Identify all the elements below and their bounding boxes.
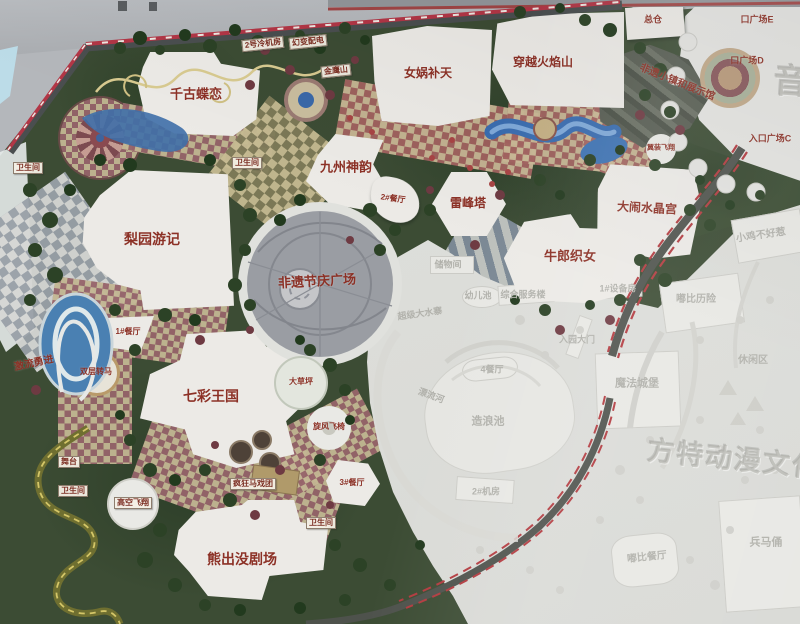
faded-label: 造浪池 [472, 417, 505, 428]
restaurant-label: 1#餐厅 [116, 328, 141, 336]
faded-label: 嘟比历险 [676, 295, 716, 305]
faded-label: 魔法城堡 [615, 379, 659, 390]
faded-label: 入园大门 [559, 336, 595, 345]
attraction-label: 穿越火焰山 [513, 56, 573, 68]
ride-label: 旋风飞椅 [313, 423, 345, 431]
restroom-label: 卫生间 [306, 517, 336, 529]
restaurant-label: 3#餐厅 [340, 479, 365, 487]
attraction-label: 总仓 [644, 16, 662, 25]
faded-label: 综合服务楼 [500, 291, 545, 300]
restroom-label: 卫生间 [58, 485, 88, 497]
attraction-label: 七彩王国 [183, 389, 239, 403]
entrance-label: 口广场D [730, 57, 764, 66]
watermark-music: 音乐 [772, 53, 800, 107]
attraction-label: 九州神韵 [320, 161, 372, 174]
entrance-label: 入口广场C [749, 135, 792, 144]
ride-label: 双层转马 [80, 368, 112, 376]
faded-label: 2#机房 [472, 488, 500, 497]
attraction-label: 非遗节庆广场 [278, 272, 357, 289]
faded-label: 储物间 [434, 261, 461, 270]
attraction-label: 雷峰塔 [450, 197, 486, 209]
attraction-label: 女娲补天 [404, 67, 452, 79]
attraction-label: 千古蝶恋 [170, 88, 222, 101]
ride-label: 翼装飞翔 [647, 145, 675, 152]
attraction-label: 熊出没剧场 [207, 552, 277, 566]
lawn-label: 大草坪 [289, 378, 313, 386]
attraction-label: 梨园游记 [124, 232, 180, 246]
ride-label: 高空飞翔 [114, 497, 152, 509]
faded-label: 4餐厅 [480, 366, 503, 375]
trees-dark [23, 6, 765, 611]
ride-label: 疯狂马戏团 [230, 478, 276, 490]
attraction-label: 牛郎织女 [544, 250, 596, 263]
faded-label: 兵马俑 [750, 538, 783, 549]
restroom-label: 卫生间 [13, 162, 43, 174]
faded-label: 休闲区 [738, 356, 768, 366]
attraction-label: 大闹水晶宫 [617, 200, 678, 215]
flower-dots [347, 115, 511, 187]
faded-label: 幼儿池 [464, 292, 491, 301]
restroom-label: 卫生间 [232, 157, 262, 169]
stage-label: 舞台 [58, 456, 80, 468]
faded-label: 1#设备房 [599, 285, 636, 294]
entrance-label: 口广场E [740, 16, 773, 25]
park-map-photo: 千古蝶恋 女娲补天 穿越火焰山 九州神韵 雷峰塔 大闹水晶宫 牛郎织女 梨园游记… [0, 0, 800, 624]
